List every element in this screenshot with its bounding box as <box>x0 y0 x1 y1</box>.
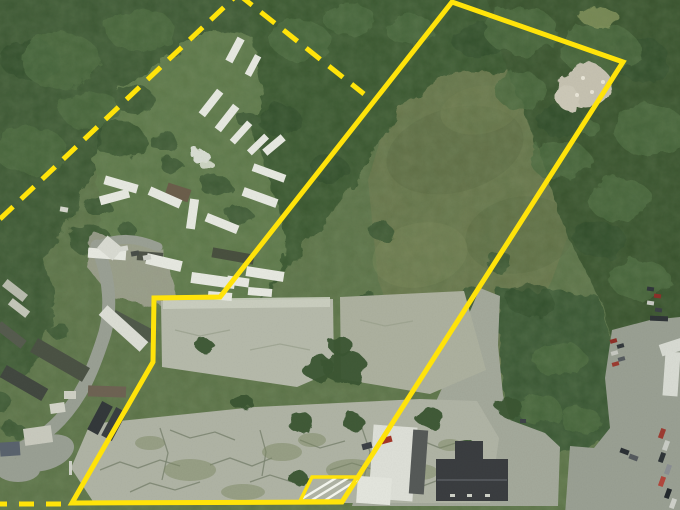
satellite-scene <box>0 0 680 510</box>
aerial-parcel-map <box>0 0 680 510</box>
